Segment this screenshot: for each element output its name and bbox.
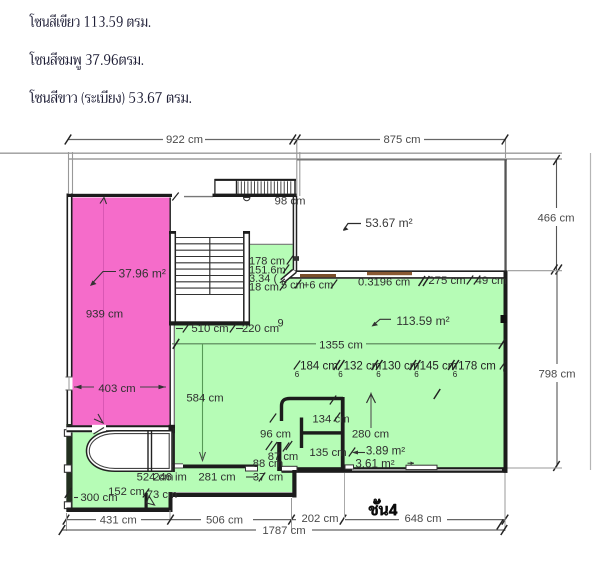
svg-text:584 cm: 584 cm	[186, 393, 223, 405]
svg-text:+6 cm: +6 cm	[303, 280, 333, 292]
svg-text:6: 6	[376, 370, 381, 379]
svg-text:202 cm: 202 cm	[301, 513, 338, 525]
svg-text:9: 9	[277, 318, 283, 330]
svg-text:6: 6	[414, 370, 419, 379]
svg-text:220 cm: 220 cm	[242, 323, 279, 335]
svg-text:6: 6	[453, 370, 458, 379]
svg-text:510 cm: 510 cm	[191, 323, 228, 335]
svg-text:6: 6	[338, 370, 343, 379]
svg-text:3.89 m²: 3.89 m²	[366, 445, 405, 458]
svg-text:798 cm: 798 cm	[538, 369, 575, 381]
svg-text:466 cm: 466 cm	[537, 213, 574, 225]
svg-text:922 cm: 922 cm	[166, 134, 203, 146]
svg-text:648 cm: 648 cm	[404, 513, 441, 525]
svg-text:134 cm: 134 cm	[312, 414, 349, 426]
svg-text:1787 cm: 1787 cm	[262, 525, 305, 537]
svg-text:145 cm: 145 cm	[420, 361, 458, 373]
svg-text:37 cm: 37 cm	[253, 472, 283, 484]
svg-text:875 cm: 875 cm	[383, 134, 420, 146]
svg-text:5 cm: 5 cm	[281, 280, 305, 292]
svg-text:275 cm: 275 cm	[428, 275, 465, 287]
svg-text:96 cm: 96 cm	[260, 429, 291, 441]
svg-text:3.61 m²: 3.61 m²	[355, 458, 394, 471]
svg-text:246 im: 246 im	[153, 472, 187, 484]
svg-text:6: 6	[295, 370, 300, 379]
svg-text:1355 cm: 1355 cm	[319, 340, 363, 352]
svg-text:73 cm: 73 cm	[147, 489, 177, 501]
svg-text:6: 6	[503, 366, 508, 375]
svg-text:98 cm: 98 cm	[274, 196, 305, 208]
svg-text:184 cm: 184 cm	[300, 361, 338, 373]
svg-text:0.3196 cm: 0.3196 cm	[358, 277, 410, 289]
svg-text:135 cm: 135 cm	[309, 447, 346, 459]
svg-text:280 cm: 280 cm	[352, 429, 389, 441]
svg-text:113.59 m²: 113.59 m²	[396, 314, 449, 328]
svg-text:281 cm: 281 cm	[198, 472, 235, 484]
svg-text:939 cm: 939 cm	[86, 309, 123, 321]
svg-text:506 cm: 506 cm	[206, 514, 243, 526]
svg-text:152 cm: 152 cm	[108, 486, 145, 498]
svg-text:37.96 m²: 37.96 m²	[119, 267, 166, 281]
svg-text:88 cm: 88 cm	[253, 458, 283, 470]
svg-text:431 cm: 431 cm	[100, 514, 137, 526]
svg-text:178 cm: 178 cm	[458, 361, 496, 373]
svg-text:53.67 m²: 53.67 m²	[365, 216, 412, 230]
svg-text:49 cm: 49 cm	[475, 275, 506, 287]
svg-text:403 cm: 403 cm	[98, 383, 135, 395]
svg-text:18 cm: 18 cm	[249, 282, 279, 294]
